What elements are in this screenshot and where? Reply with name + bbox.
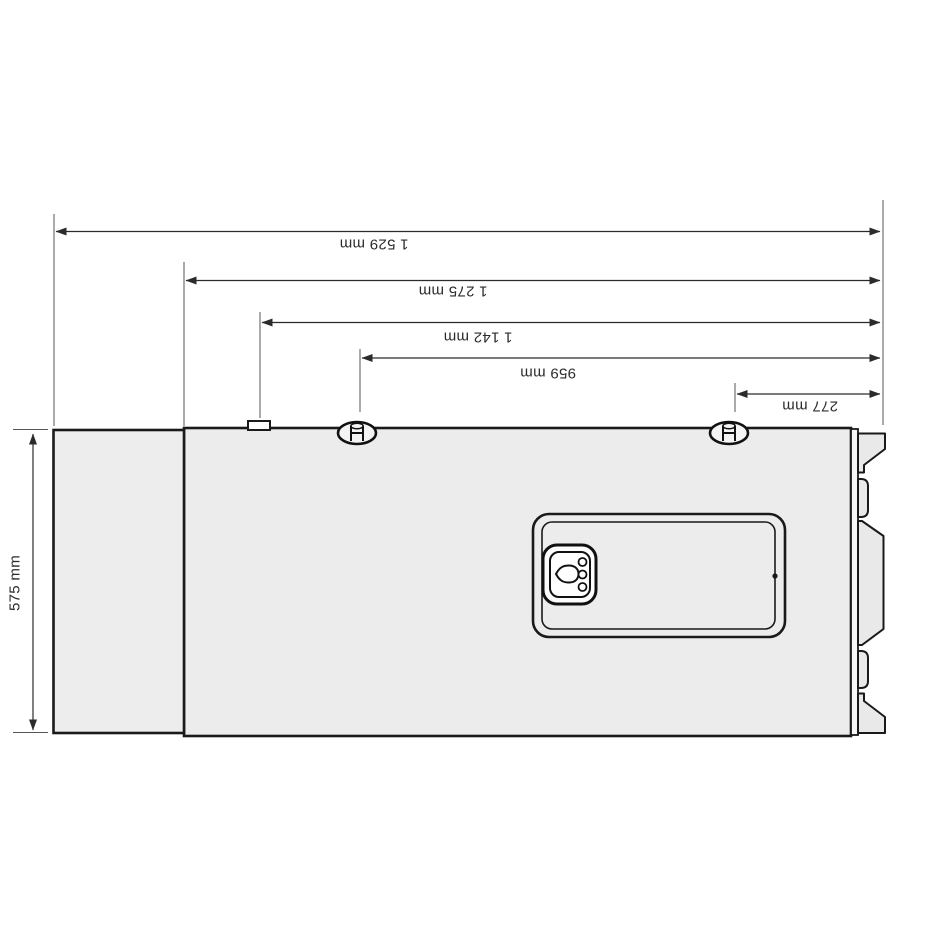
indicator-dot: [579, 571, 587, 579]
top-tab: [248, 421, 270, 430]
three-dot-indicator-icon: [579, 558, 587, 591]
dim-label-1529: 1 529 mm: [339, 236, 408, 253]
dim-label-1000-clipped: 1 000 mm: [937, 553, 940, 622]
right-screw-cap: [710, 422, 748, 444]
dim-label-1142: 1 142 mm: [443, 329, 512, 346]
dim-label-1275: 1 275 mm: [418, 283, 487, 300]
mounting-clips: [858, 434, 885, 734]
dim-label-959: 959 mm: [520, 365, 576, 382]
right-strip: [851, 429, 858, 735]
left-panel: [54, 430, 185, 733]
dim-label-575: 575 mm: [7, 555, 24, 611]
dimension-diagram: 1 529 mm 1 275 mm 1 142 mm 959 mm 277 mm…: [0, 0, 940, 940]
control-panel: [543, 545, 596, 604]
clip-bottom: [858, 694, 885, 734]
indicator-dot: [579, 558, 587, 566]
left-screw-cap: [338, 422, 376, 444]
door-latch-dot: [772, 573, 777, 578]
clip-top: [858, 434, 885, 473]
appliance-body: [54, 421, 886, 736]
dim-label-277: 277 mm: [782, 398, 838, 415]
indicator-dot: [579, 583, 587, 591]
diagram-linework: [0, 0, 940, 940]
clip-bump-upper: [858, 479, 868, 517]
water-drop-icon: [556, 566, 579, 583]
clip-bump-lower: [858, 651, 868, 688]
clip-middle: [858, 521, 884, 645]
main-cabinet: [184, 428, 851, 736]
